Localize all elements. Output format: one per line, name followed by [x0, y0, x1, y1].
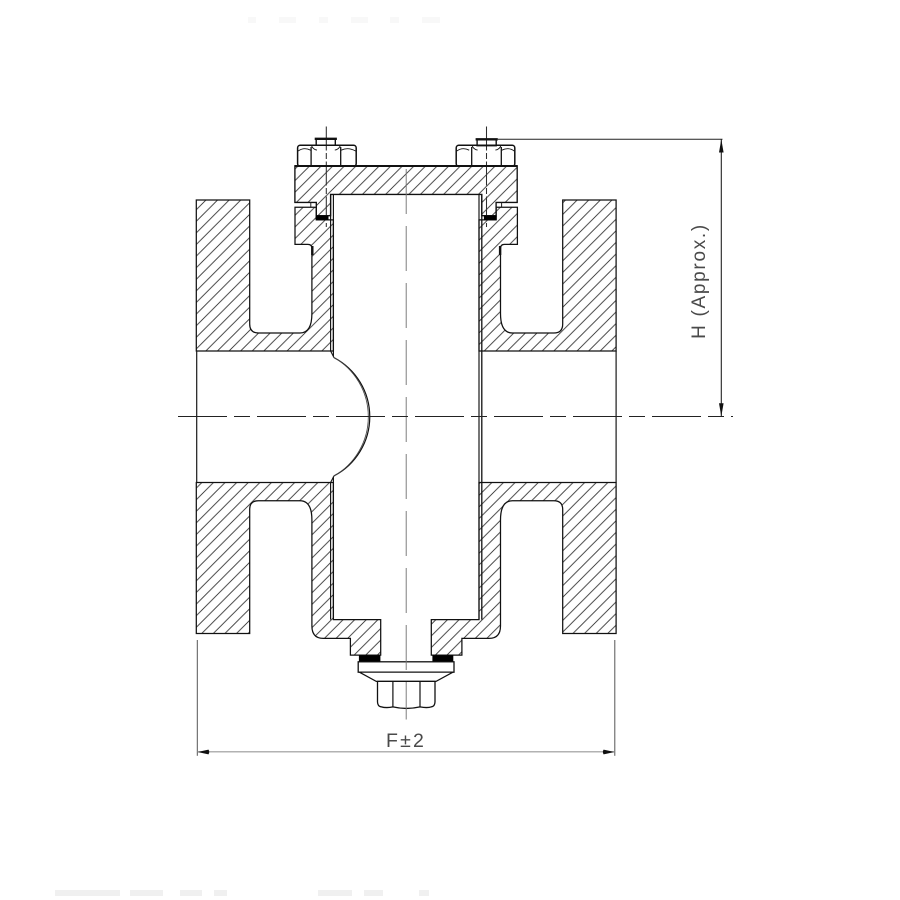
svg-text:H (Approx.): H (Approx.): [689, 223, 710, 339]
svg-text:F±2: F±2: [386, 730, 426, 752]
